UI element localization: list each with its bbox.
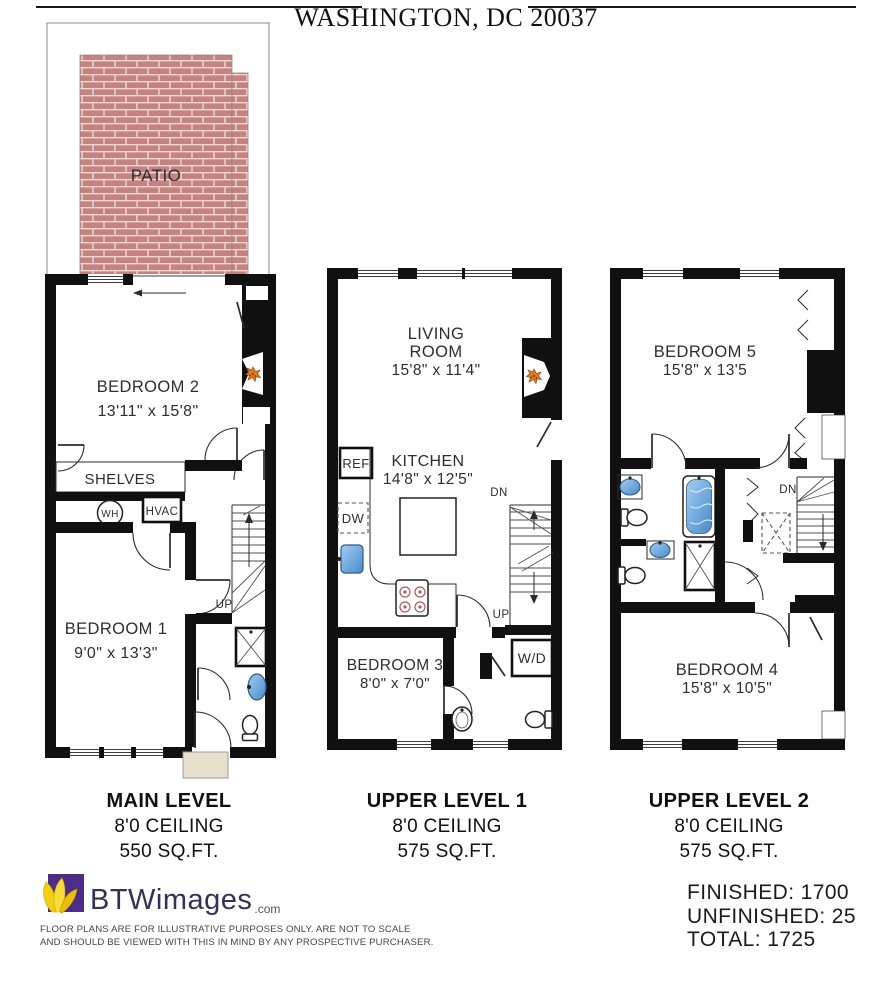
wd-label: W/D (518, 650, 546, 666)
living-room-label-1: LIVING (408, 325, 465, 343)
grand-total: TOTAL: 1725 (687, 928, 856, 952)
kitchen-dims: 14'8" x 12'5" (383, 471, 473, 488)
dishwasher: DW (338, 503, 368, 533)
bedroom5-bottom-wall (621, 434, 807, 469)
shower-upper2 (685, 542, 715, 590)
up-label-main: UP (216, 599, 233, 611)
area-totals: FINISHED: 1700 UNFINISHED: 25 TOTAL: 172… (687, 881, 856, 952)
bath-door-main (198, 668, 230, 700)
caption-main-ceiling: 8'0 CEILING (53, 816, 285, 838)
caption-u1-area: 575 SQ.FT. (331, 841, 563, 863)
bath1-sink (618, 475, 642, 499)
bedroom3-dims: 8'0" x 7'0" (360, 675, 430, 692)
toilet-main (243, 716, 258, 741)
bedroom5-label: BEDROOM 5 (654, 343, 757, 361)
caption-main-level: MAIN LEVEL 8'0 CEILING 550 SQ.FT. (53, 790, 285, 863)
hvac-label: HVAC (146, 506, 179, 518)
hall-door-arc (725, 562, 763, 600)
windows-top-upper1 (358, 268, 512, 279)
up-label-upper1: UP (493, 609, 510, 621)
btw-logo-tld: .com (254, 898, 280, 920)
ref-label: REF (342, 456, 369, 471)
bedroom2-hall-wall (185, 428, 242, 471)
shelves: SHELVES (56, 445, 185, 501)
entry-stoop (183, 752, 228, 778)
dn-label-upper2: DN (779, 484, 796, 496)
disclaimer-line2: AND SHOULD BE VIEWED WITH THIS IN MIND B… (40, 936, 434, 949)
patio: PATIO (47, 23, 269, 276)
bath2-toilet (618, 567, 645, 584)
bath-hall-wall (715, 469, 725, 613)
refrigerator: REF (340, 448, 372, 478)
bedroom5-dims: 15'8" x 13'5 (663, 362, 747, 379)
caption-u2-area: 575 SQ.FT. (613, 841, 845, 863)
slider-arrow (133, 290, 142, 297)
living-room-label-2: ROOM (410, 343, 463, 361)
caption-upper-level-2: UPPER LEVEL 2 8'0 CEILING 575 SQ.FT. (613, 790, 845, 863)
caption-u2-ceiling: 8'0 CEILING (613, 816, 845, 838)
bedroom2-label: BEDROOM 2 (97, 378, 200, 396)
dw-label: DW (342, 511, 365, 526)
chimney-chase-upper2 (807, 350, 845, 459)
stairs-upper1: DN UP (490, 487, 553, 625)
floorplan-page: WASHINGTON, DC 20037 PATIO (0, 0, 892, 990)
window-top-main (88, 274, 225, 297)
bedroom4-label: BEDROOM 4 (676, 661, 779, 679)
plan-upper-level-2: BEDROOM 5 15'8" x 13'5 (602, 262, 858, 758)
plan-main-level: PATIO (38, 18, 290, 798)
patio-label: PATIO (131, 166, 182, 185)
caption-u1-ceiling: 8'0 CEILING (331, 816, 563, 838)
bath1-toilet (621, 509, 647, 526)
bedroom1-dims: 9'0" x 13'3" (74, 645, 158, 662)
unfinished-total: UNFINISHED: 25 (687, 905, 856, 929)
stair-landing-wall (783, 553, 842, 563)
caption-main-area: 550 SQ.FT. (53, 841, 285, 863)
kitchen-island (400, 498, 456, 555)
caption-main-title: MAIN LEVEL (53, 790, 285, 813)
shower-main (236, 628, 266, 666)
stairs-upper2: DN (779, 477, 834, 553)
fireplace-upper1 (522, 338, 562, 460)
bath2-sink (647, 541, 674, 559)
wh-label: WH (101, 509, 118, 520)
bedroom2-dims: 13'11" x 15'8" (97, 403, 198, 420)
windows-bottom-main (70, 747, 163, 758)
hall-closet (762, 513, 790, 553)
water-heater: WH (98, 501, 123, 526)
bedroom1-label: BEDROOM 1 (65, 620, 168, 638)
bedroom4-dims: 15'8" x 10'5" (682, 680, 772, 697)
btw-logo: BTWimages .com (38, 872, 280, 920)
disclaimer-line1: FLOOR PLANS ARE FOR ILLUSTRATIVE PURPOSE… (40, 923, 434, 936)
sink-main (247, 674, 266, 700)
btw-logo-text: BTWimages (90, 880, 252, 920)
btw-logo-icon (38, 872, 86, 920)
stove (396, 580, 428, 616)
caption-u1-title: UPPER LEVEL 1 (331, 790, 563, 813)
disclaimer: FLOOR PLANS ARE FOR ILLUSTRATIVE PURPOSE… (40, 923, 434, 949)
bifold-marks-bedroom5 (795, 290, 808, 461)
caption-u2-title: UPPER LEVEL 2 (613, 790, 845, 813)
dn-label-upper1: DN (490, 487, 507, 499)
toilet-upper1 (526, 711, 553, 728)
caption-upper-level-1: UPPER LEVEL 1 8'0 CEILING 575 SQ.FT. (331, 790, 563, 863)
bedroom4-walls (621, 562, 845, 739)
living-room-dims: 15'8" x 11'4" (391, 362, 480, 379)
bath-sink-upper1 (452, 707, 472, 731)
kitchen-label: KITCHEN (391, 453, 464, 470)
hvac-unit: HVAC (143, 497, 181, 522)
finished-total: FINISHED: 1700 (687, 881, 856, 905)
bath-divider-wall (618, 539, 646, 546)
stairs-main: UP (216, 505, 265, 613)
bathtub (683, 476, 715, 537)
plan-upper-level-1: LIVING ROOM 15'8" x 11'4" KITCHEN 14'8" … (322, 262, 574, 758)
kitchen-sink (337, 545, 363, 573)
shelves-label: SHELVES (85, 471, 156, 488)
bedroom3-label: BEDROOM 3 (347, 657, 444, 674)
